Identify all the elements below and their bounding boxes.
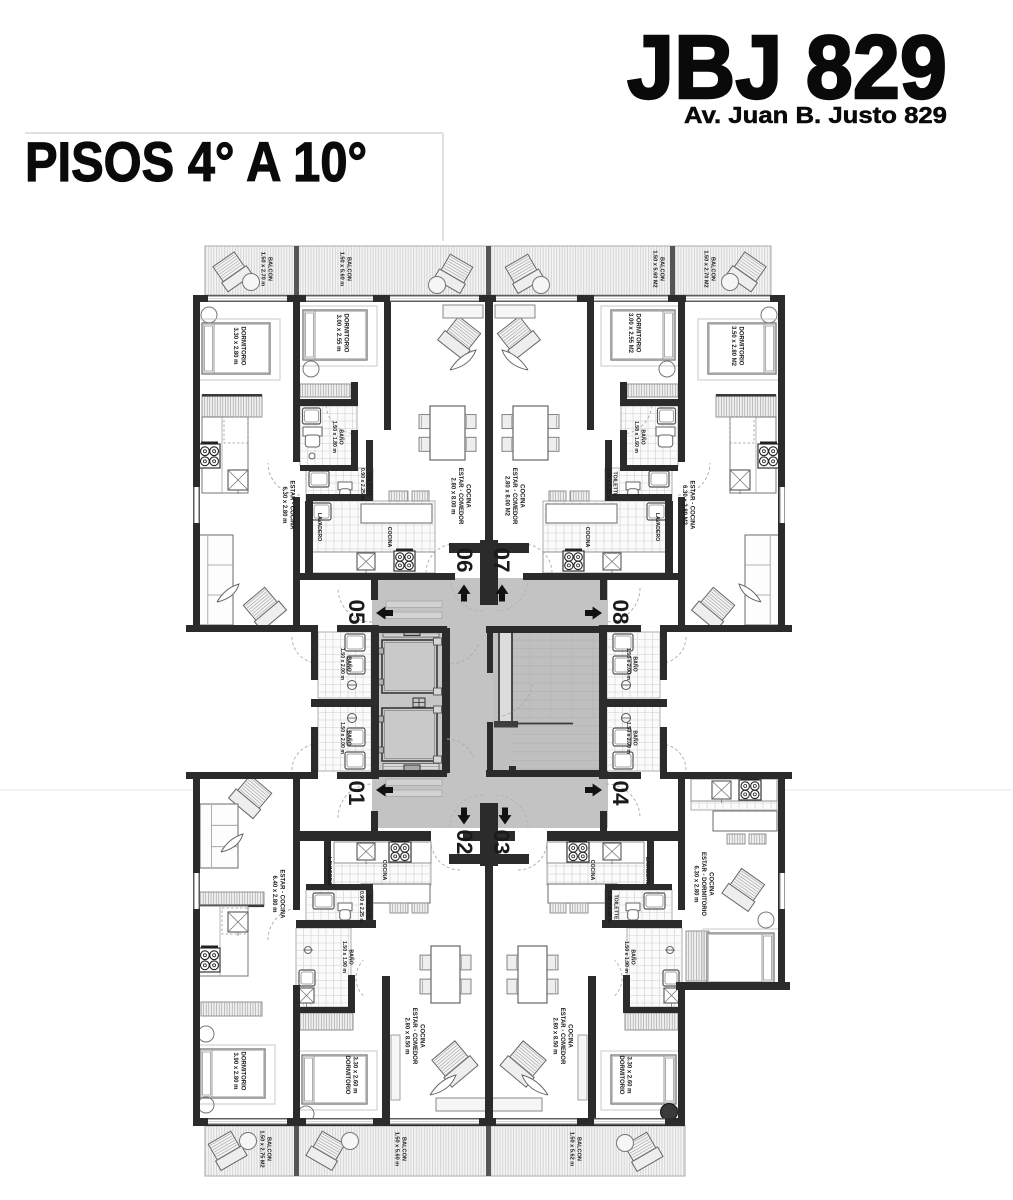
svg-text:DORMITORIO: DORMITORIO	[738, 327, 744, 366]
svg-text:COCINA: COCINA	[518, 484, 524, 508]
svg-text:3.00 x 2.55 m: 3.00 x 2.55 m	[335, 314, 341, 351]
svg-text:1.50 x 2.00 m: 1.50 x 2.00 m	[339, 722, 345, 754]
svg-text:6.30 x 2.80 M2: 6.30 x 2.80 M2	[681, 485, 687, 526]
svg-text:BAÑO: BAÑO	[345, 730, 352, 745]
svg-text:TOILETTE: TOILETTE	[364, 895, 370, 921]
svg-text:3.30 x 2.80 m: 3.30 x 2.80 m	[232, 327, 238, 364]
svg-text:LAVADERO: LAVADERO	[326, 857, 332, 885]
svg-text:07: 07	[489, 547, 514, 572]
svg-text:COCINA: COCINA	[381, 860, 387, 881]
svg-text:BAÑO: BAÑO	[639, 429, 646, 444]
svg-text:04: 04	[608, 780, 633, 806]
svg-text:BAÑO: BAÑO	[345, 656, 352, 671]
svg-text:1.50 x 5.60 m: 1.50 x 5.60 m	[339, 252, 345, 287]
svg-text:COCINA: COCINA	[566, 1024, 572, 1048]
svg-text:1.50 x 1.80 m: 1.50 x 1.80 m	[331, 421, 337, 453]
svg-text:1.50 x 2.00 m: 1.50 x 2.00 m	[625, 648, 631, 680]
svg-text:0.90 x 2.25 m: 0.90 x 2.25 m	[359, 468, 365, 500]
svg-text:BAÑO: BAÑO	[629, 949, 636, 964]
svg-text:3.30 x 2.60 m: 3.30 x 2.60 m	[626, 1056, 632, 1093]
svg-text:TOILETTE: TOILETTE	[612, 895, 618, 921]
svg-text:ESTAR - COCINA: ESTAR - COCINA	[279, 870, 285, 920]
svg-text:BALCON: BALCON	[659, 257, 665, 281]
svg-text:6.30 x 2.80 m: 6.30 x 2.80 m	[281, 486, 287, 523]
svg-text:TOILETTE: TOILETTE	[611, 472, 617, 498]
svg-text:ESTAR - COMEDOR: ESTAR - COMEDOR	[559, 1008, 565, 1065]
svg-text:PISOS 4° A 10°: PISOS 4° A 10°	[25, 130, 367, 193]
svg-text:1.50 x 1.90 m: 1.50 x 1.90 m	[623, 941, 629, 973]
svg-text:6.40 x 2.80 m: 6.40 x 2.80 m	[271, 875, 277, 912]
svg-text:DORMITORIO: DORMITORIO	[635, 314, 641, 353]
svg-text:BALCON: BALCON	[267, 257, 273, 281]
svg-text:1.50 x 2.70 m: 1.50 x 2.70 m	[260, 252, 266, 287]
svg-text:0.90 x 2.25 m: 0.90 x 2.25 m	[606, 891, 612, 923]
svg-text:08: 08	[608, 599, 633, 624]
svg-text:02: 02	[452, 829, 477, 854]
svg-text:DORMITORIO: DORMITORIO	[344, 1056, 350, 1095]
svg-text:ESTAR - COMEDOR: ESTAR - COMEDOR	[511, 468, 517, 525]
svg-text:DORMITORIO: DORMITORIO	[618, 1056, 624, 1095]
svg-text:BAÑO: BAÑO	[347, 949, 354, 964]
svg-text:ESTAR - COMEDOR: ESTAR - COMEDOR	[457, 468, 463, 525]
svg-text:BALCON: BALCON	[710, 257, 716, 281]
svg-text:LAVADERO: LAVADERO	[654, 513, 660, 541]
svg-text:2.80 x 8.50 m: 2.80 x 8.50 m	[403, 1017, 409, 1054]
svg-text:BAÑO: BAÑO	[337, 429, 344, 444]
svg-text:1.50 x 1.60 m: 1.50 x 1.60 m	[633, 421, 639, 453]
svg-text:1.50 x 5.60 m: 1.50 x 5.60 m	[394, 1132, 400, 1167]
svg-text:COCINA: COCINA	[464, 484, 470, 508]
svg-text:DORMITORIO: DORMITORIO	[240, 327, 246, 366]
svg-text:1.50 x 2.00 m: 1.50 x 2.00 m	[339, 648, 345, 680]
svg-text:BALCON: BALCON	[401, 1137, 407, 1161]
svg-text:LAVADERO: LAVADERO	[644, 857, 650, 885]
svg-text:COCINA: COCINA	[589, 860, 595, 881]
svg-text:ESTAR - DORMITORIO: ESTAR - DORMITORIO	[700, 852, 706, 916]
svg-text:2.80 x 8.00 M2: 2.80 x 8.00 M2	[503, 476, 509, 517]
svg-text:3.90 x 2.80 m: 3.90 x 2.80 m	[232, 1052, 238, 1089]
svg-text:COCINA: COCINA	[386, 527, 392, 548]
svg-text:2.80 x 8.50 m: 2.80 x 8.50 m	[551, 1017, 557, 1054]
svg-text:6.30 x 2.80 m: 6.30 x 2.80 m	[692, 865, 698, 902]
svg-text:1.50 x 5.62 m: 1.50 x 5.62 m	[569, 1132, 575, 1167]
svg-text:COCINA: COCINA	[584, 527, 590, 548]
svg-text:BAÑO: BAÑO	[631, 730, 638, 745]
svg-text:BALCON: BALCON	[266, 1137, 272, 1161]
svg-text:BALCON: BALCON	[346, 257, 352, 281]
svg-text:DORMITORIO: DORMITORIO	[343, 314, 349, 353]
svg-text:1.50 x 2.70 M2: 1.50 x 2.70 M2	[703, 250, 709, 287]
svg-text:COCINA: COCINA	[418, 1024, 424, 1048]
svg-text:ESTAR - COMEDOR: ESTAR - COMEDOR	[411, 1008, 417, 1065]
svg-text:1.50 x 5.60 M2: 1.50 x 5.60 M2	[652, 250, 658, 287]
svg-text:BALCON: BALCON	[576, 1137, 582, 1161]
svg-text:TOILETTE: TOILETTE	[365, 472, 371, 498]
svg-text:01: 01	[344, 780, 369, 805]
svg-text:BAÑO: BAÑO	[631, 656, 638, 671]
svg-text:3.00 x 2.55 M2: 3.00 x 2.55 M2	[627, 313, 633, 354]
svg-text:ESTAR - COCINA: ESTAR - COCINA	[289, 481, 295, 531]
svg-text:ESTAR - COCINA: ESTAR - COCINA	[689, 481, 695, 531]
svg-text:03: 03	[489, 829, 514, 854]
svg-text:0.90 x 2.25 m: 0.90 x 2.25 m	[358, 891, 364, 923]
svg-text:COCINA: COCINA	[707, 872, 713, 896]
svg-text:3.30 x 2.60 m: 3.30 x 2.60 m	[352, 1056, 358, 1093]
svg-text:1.50 x 1.90 m: 1.50 x 1.90 m	[341, 941, 347, 973]
svg-text:3.50 x 2.80 M2: 3.50 x 2.80 M2	[730, 326, 736, 367]
svg-text:1.50 x 2.00 m: 1.50 x 2.00 m	[625, 722, 631, 754]
svg-text:0.90 x 2.25 m: 0.90 x 2.25 m	[605, 468, 611, 500]
svg-text:2.80 x 8.00 m: 2.80 x 8.00 m	[449, 477, 455, 514]
svg-text:LAVADERO: LAVADERO	[316, 513, 322, 541]
svg-text:DORMITORIO: DORMITORIO	[240, 1052, 246, 1091]
svg-text:Av. Juan B. Justo 829: Av. Juan B. Justo 829	[684, 102, 947, 128]
svg-text:1.50 x 2.75 M2: 1.50 x 2.75 M2	[259, 1130, 265, 1167]
svg-text:05: 05	[344, 599, 369, 624]
svg-text:06: 06	[452, 547, 477, 572]
